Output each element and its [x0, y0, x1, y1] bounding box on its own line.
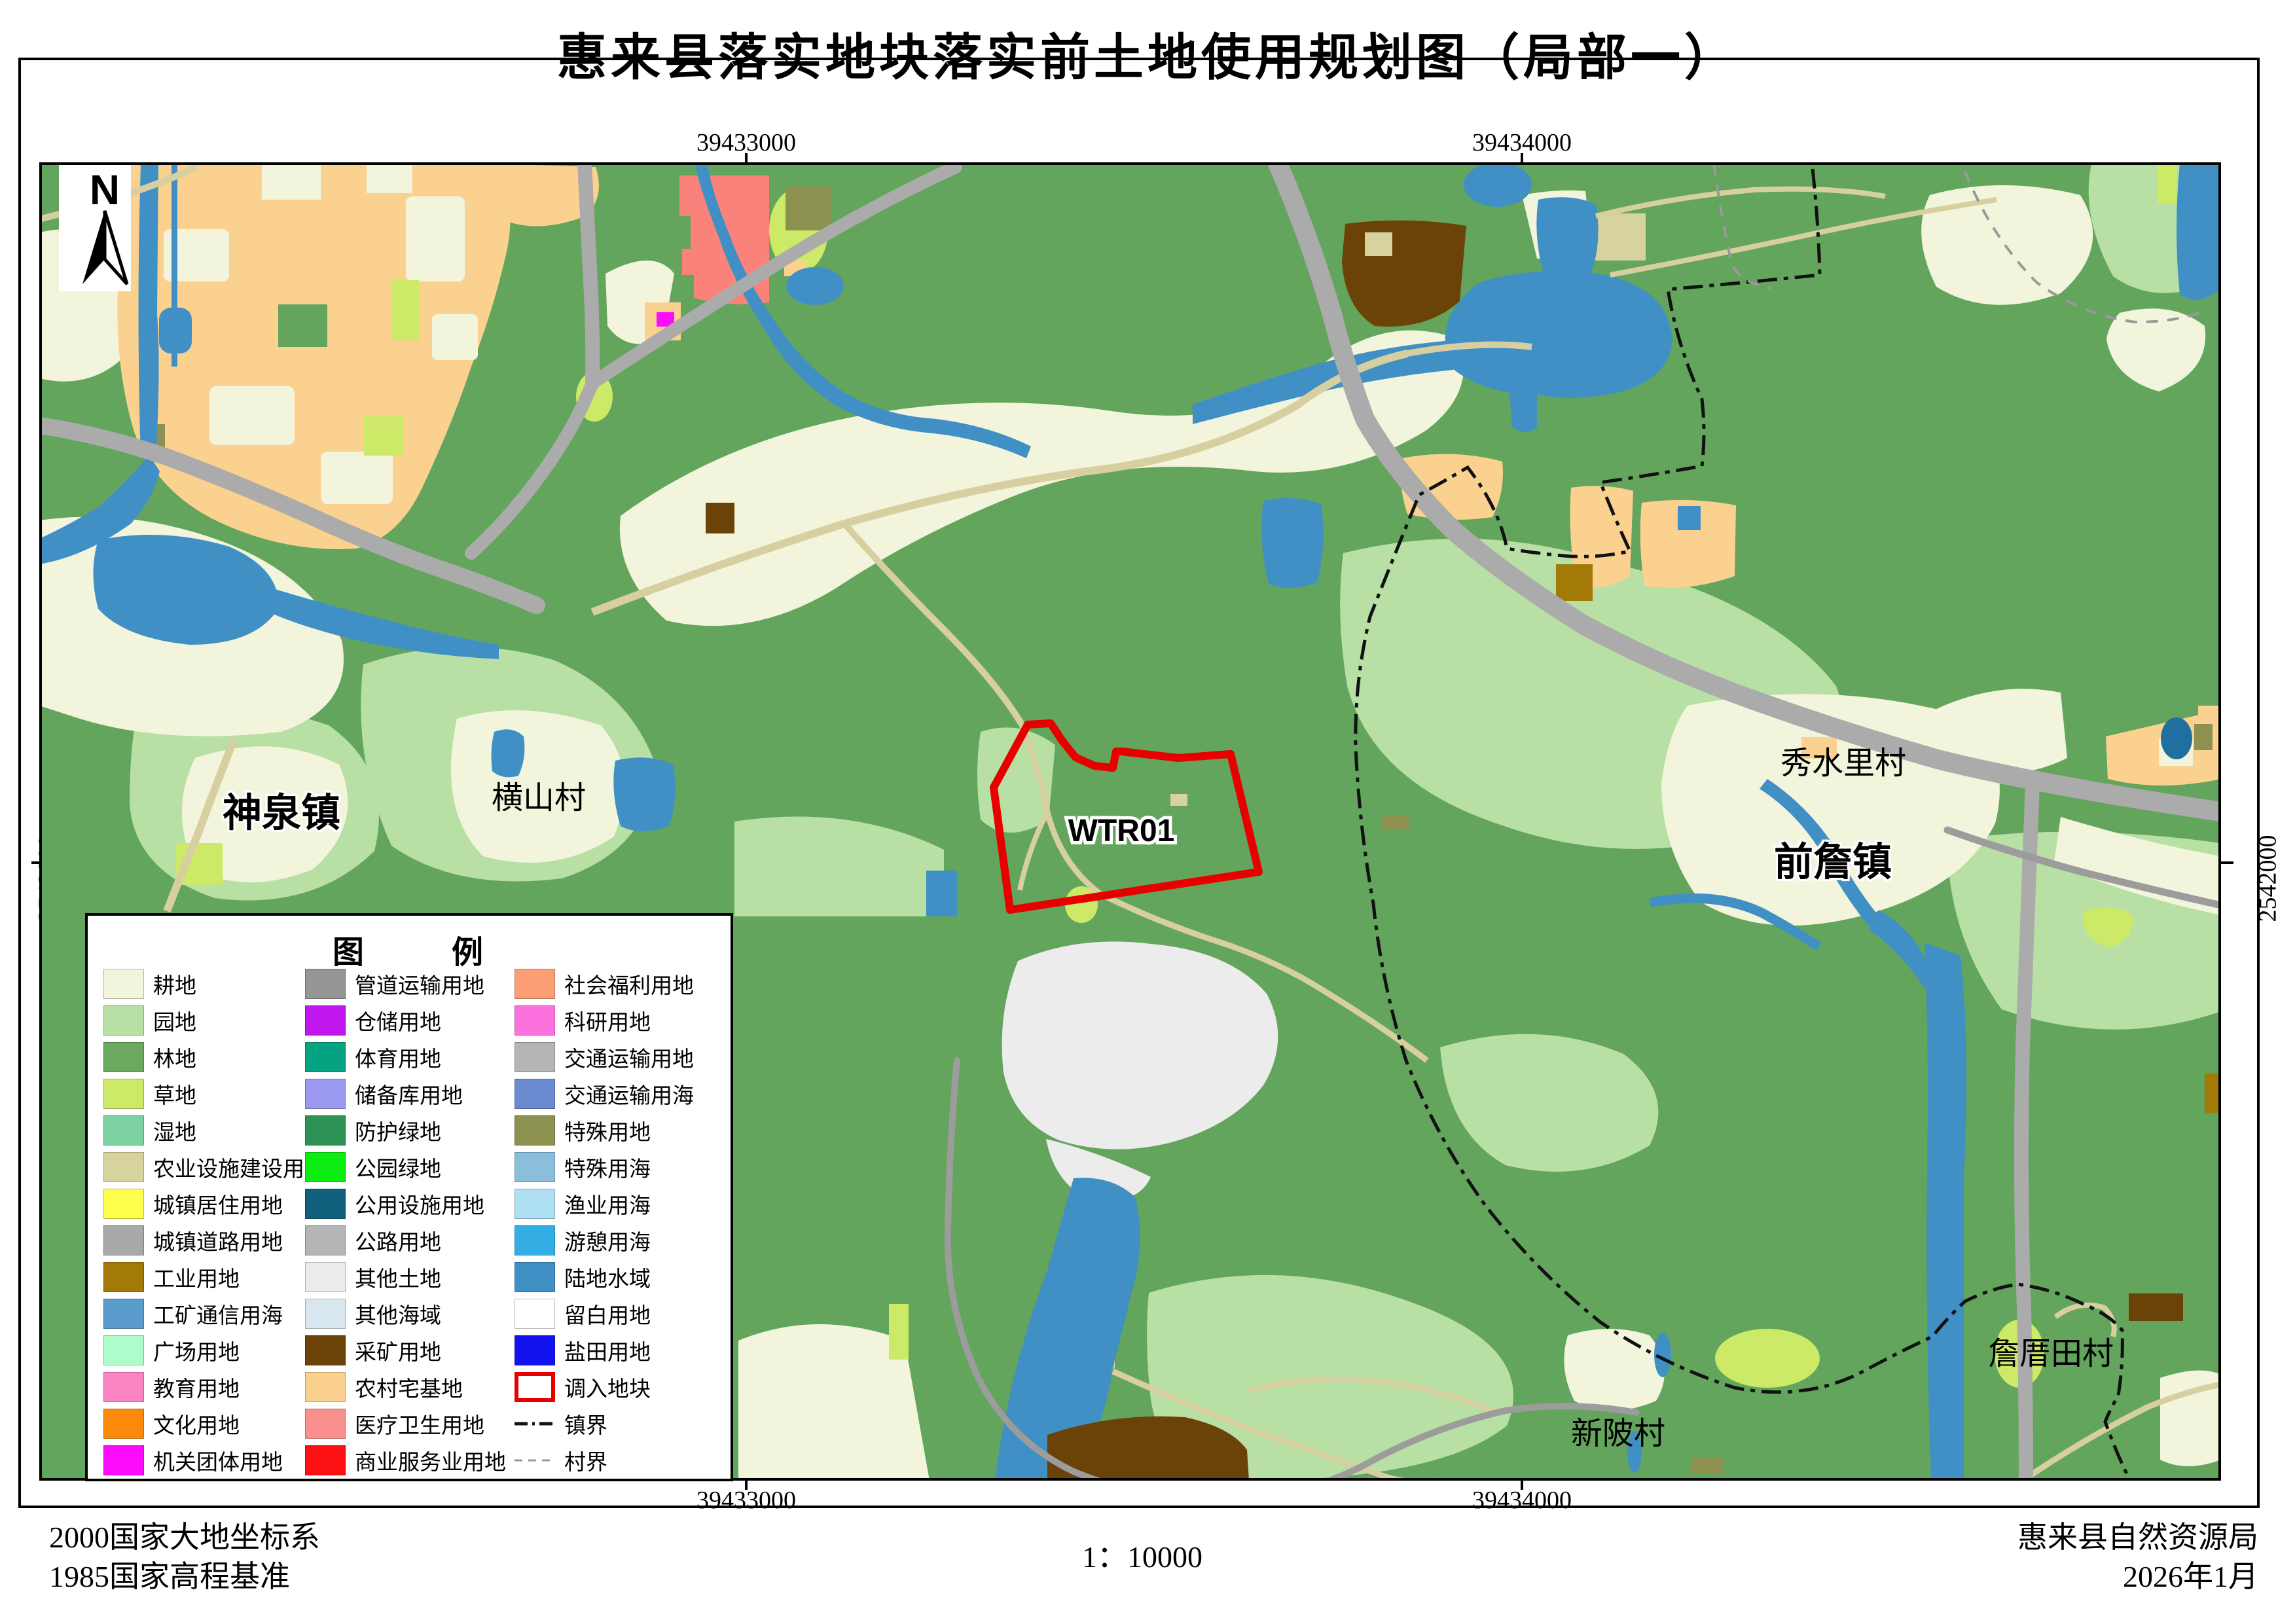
legend-label: 林地 [153, 1041, 196, 1073]
legend-item: 体育用地 [305, 1039, 501, 1075]
legend-swatch [515, 1079, 555, 1109]
scale-text: 1：10000 [1082, 1533, 1202, 1576]
legend-swatch [103, 1152, 144, 1182]
legend-swatch [305, 1189, 346, 1219]
legend-item: 农业设施建设用地 [103, 1149, 300, 1185]
legend-label: 商业服务业用地 [355, 1445, 506, 1476]
legend-item: 其他土地 [305, 1259, 501, 1295]
legend-swatch [103, 1005, 144, 1036]
legend-swatch [305, 1042, 346, 1072]
legend-label: 湿地 [153, 1115, 196, 1146]
legend-item: 游憩用海 [515, 1222, 711, 1259]
legend-label: 医疗卫生用地 [355, 1408, 484, 1439]
legend-swatch [515, 1225, 555, 1255]
legend-item: 留白用地 [515, 1295, 711, 1332]
map-sheet: 惠来县落实地块落实前土地使用规划图（局部一） 39433000 39434000… [0, 0, 2295, 1624]
legend-label: 仓储用地 [355, 1005, 441, 1036]
legend-columns: 耕地园地林地草地湿地农业设施建设用地城镇居住用地城镇道路用地工业用地工矿通信用海… [88, 965, 731, 1479]
north-label: N [90, 166, 120, 213]
legend-swatch [305, 1262, 346, 1292]
legend-item: 公用设施用地 [305, 1185, 501, 1222]
legend-title: 图例 [88, 916, 731, 972]
legend-label: 园地 [153, 1005, 196, 1036]
legend-item: 广场用地 [103, 1332, 300, 1369]
legend-swatch [305, 1409, 346, 1439]
legend-label: 游憩用海 [564, 1225, 651, 1256]
north-arrow: N [59, 164, 131, 291]
legend-label: 留白用地 [564, 1298, 651, 1329]
legend-swatch [305, 969, 346, 999]
datum-line-1: 2000国家大地坐标系 [49, 1513, 320, 1557]
legend-item: 湿地 [103, 1112, 300, 1149]
legend-swatch [515, 1152, 555, 1182]
date-text: 2026年1月 [2123, 1553, 2258, 1596]
legend-item: 文化用地 [103, 1405, 300, 1442]
legend-item: 防护绿地 [305, 1112, 501, 1149]
legend-swatch [305, 1115, 346, 1146]
legend-label: 渔业用海 [564, 1188, 651, 1219]
legend-label: 城镇道路用地 [153, 1225, 283, 1256]
legend-swatch [515, 1335, 555, 1365]
legend-item: 特殊用地 [515, 1112, 711, 1149]
legend-column-3: 社会福利用地科研用地交通运输用地交通运输用海特殊用地特殊用海渔业用海游憩用海陆地… [515, 965, 711, 1479]
legend-item: 公园绿地 [305, 1149, 501, 1185]
legend-item: 城镇道路用地 [103, 1222, 300, 1259]
legend-label: 防护绿地 [355, 1115, 441, 1146]
legend-swatch [305, 1299, 346, 1329]
legend-label: 工矿通信用海 [153, 1298, 283, 1329]
legend-swatch [515, 969, 555, 999]
legend-swatch [305, 1372, 346, 1402]
legend: 图例 耕地园地林地草地湿地农业设施建设用地城镇居住用地城镇道路用地工业用地工矿通… [85, 913, 733, 1481]
legend-swatch [103, 1335, 144, 1365]
legend-swatch [103, 1299, 144, 1329]
legend-item: 农村宅基地 [305, 1369, 501, 1405]
legend-item: 调入地块 [515, 1369, 711, 1405]
legend-label: 特殊用地 [564, 1115, 651, 1146]
legend-label: 农业设施建设用地 [153, 1151, 326, 1183]
legend-swatch [103, 1445, 144, 1475]
legend-item: 村界 [515, 1442, 711, 1479]
legend-swatch [515, 1042, 555, 1072]
legend-item: 社会福利用地 [515, 965, 711, 1002]
legend-label: 科研用地 [564, 1005, 651, 1036]
legend-item: 工矿通信用海 [103, 1295, 300, 1332]
legend-label: 镇界 [564, 1408, 607, 1439]
legend-swatch [515, 1115, 555, 1146]
grid-label-right: 2542000 [2254, 835, 2283, 922]
legend-swatch [103, 1189, 144, 1219]
legend-label: 管道运输用地 [355, 968, 484, 1000]
legend-item: 盐田用地 [515, 1332, 711, 1369]
legend-label: 城镇居住用地 [153, 1188, 283, 1219]
legend-label: 工业用地 [153, 1261, 240, 1293]
legend-label: 文化用地 [153, 1408, 240, 1439]
legend-swatch [515, 1445, 555, 1475]
legend-label: 其他土地 [355, 1261, 441, 1293]
legend-label: 教育用地 [153, 1371, 240, 1403]
legend-label: 其他海域 [355, 1298, 441, 1329]
legend-item: 其他海域 [305, 1295, 501, 1332]
legend-item: 机关团体用地 [103, 1442, 300, 1479]
legend-label: 村界 [564, 1445, 607, 1476]
legend-item: 公路用地 [305, 1222, 501, 1259]
legend-label: 草地 [153, 1078, 196, 1110]
legend-swatch [305, 1079, 346, 1109]
legend-swatch [515, 1189, 555, 1219]
legend-item: 管道运输用地 [305, 965, 501, 1002]
legend-label: 农村宅基地 [355, 1371, 463, 1403]
legend-swatch [305, 1335, 346, 1365]
legend-label: 调入地块 [564, 1371, 651, 1403]
legend-label: 耕地 [153, 968, 196, 1000]
legend-item: 交通运输用海 [515, 1075, 711, 1112]
legend-label: 盐田用地 [564, 1335, 651, 1366]
legend-swatch [103, 1079, 144, 1109]
legend-item: 特殊用海 [515, 1149, 711, 1185]
agency-text: 惠来县自然资源局 [2017, 1513, 2258, 1557]
legend-swatch [305, 1152, 346, 1182]
legend-label: 特殊用海 [564, 1151, 651, 1183]
legend-swatch [103, 1262, 144, 1292]
legend-item: 仓储用地 [305, 1002, 501, 1039]
legend-swatch [305, 1005, 346, 1036]
legend-item: 商业服务业用地 [305, 1442, 501, 1479]
legend-swatch [515, 1299, 555, 1329]
legend-swatch [305, 1445, 346, 1475]
legend-swatch [305, 1225, 346, 1255]
legend-label: 公路用地 [355, 1225, 441, 1256]
legend-swatch [515, 1409, 555, 1439]
legend-label: 社会福利用地 [564, 968, 694, 1000]
legend-item: 渔业用海 [515, 1185, 711, 1222]
legend-item: 陆地水域 [515, 1259, 711, 1295]
legend-swatch [103, 1225, 144, 1255]
legend-label: 采矿用地 [355, 1335, 441, 1366]
legend-label: 交通运输用地 [564, 1041, 694, 1073]
deep-pond [2161, 717, 2192, 759]
legend-label: 体育用地 [355, 1041, 441, 1073]
legend-swatch [103, 1372, 144, 1402]
legend-label: 储备库用地 [355, 1078, 463, 1110]
legend-label: 公园绿地 [355, 1151, 441, 1183]
legend-column-1: 耕地园地林地草地湿地农业设施建设用地城镇居住用地城镇道路用地工业用地工矿通信用海… [103, 965, 300, 1479]
legend-item: 储备库用地 [305, 1075, 501, 1112]
legend-label: 机关团体用地 [153, 1445, 283, 1476]
legend-item: 城镇居住用地 [103, 1185, 300, 1222]
legend-item: 医疗卫生用地 [305, 1405, 501, 1442]
legend-label: 交通运输用海 [564, 1078, 694, 1110]
legend-item: 镇界 [515, 1405, 711, 1442]
legend-item: 耕地 [103, 965, 300, 1002]
legend-item: 采矿用地 [305, 1332, 501, 1369]
legend-item: 工业用地 [103, 1259, 300, 1295]
grid-label-bottom-right: 39434000 [1472, 1486, 1572, 1515]
legend-column-2: 管道运输用地仓储用地体育用地储备库用地防护绿地公园绿地公用设施用地公路用地其他土… [305, 965, 501, 1479]
legend-swatch [515, 1372, 555, 1402]
legend-item: 草地 [103, 1075, 300, 1112]
legend-swatch [515, 1262, 555, 1292]
legend-swatch [103, 1409, 144, 1439]
legend-swatch [103, 969, 144, 999]
legend-item: 交通运输用地 [515, 1039, 711, 1075]
legend-label: 陆地水域 [564, 1261, 651, 1293]
legend-item: 科研用地 [515, 1002, 711, 1039]
legend-label: 广场用地 [153, 1335, 240, 1366]
legend-item: 园地 [103, 1002, 300, 1039]
legend-swatch [103, 1042, 144, 1072]
parcel-label: WTR01 [1068, 814, 1175, 848]
grid-label-bottom-left: 39433000 [696, 1486, 796, 1515]
datum-line-2: 1985国家高程基准 [49, 1553, 290, 1596]
pond [1678, 506, 1701, 530]
legend-item: 林地 [103, 1039, 300, 1075]
legend-label: 公用设施用地 [355, 1188, 484, 1219]
legend-swatch [103, 1115, 144, 1146]
legend-swatch [515, 1005, 555, 1036]
legend-item: 教育用地 [103, 1369, 300, 1405]
